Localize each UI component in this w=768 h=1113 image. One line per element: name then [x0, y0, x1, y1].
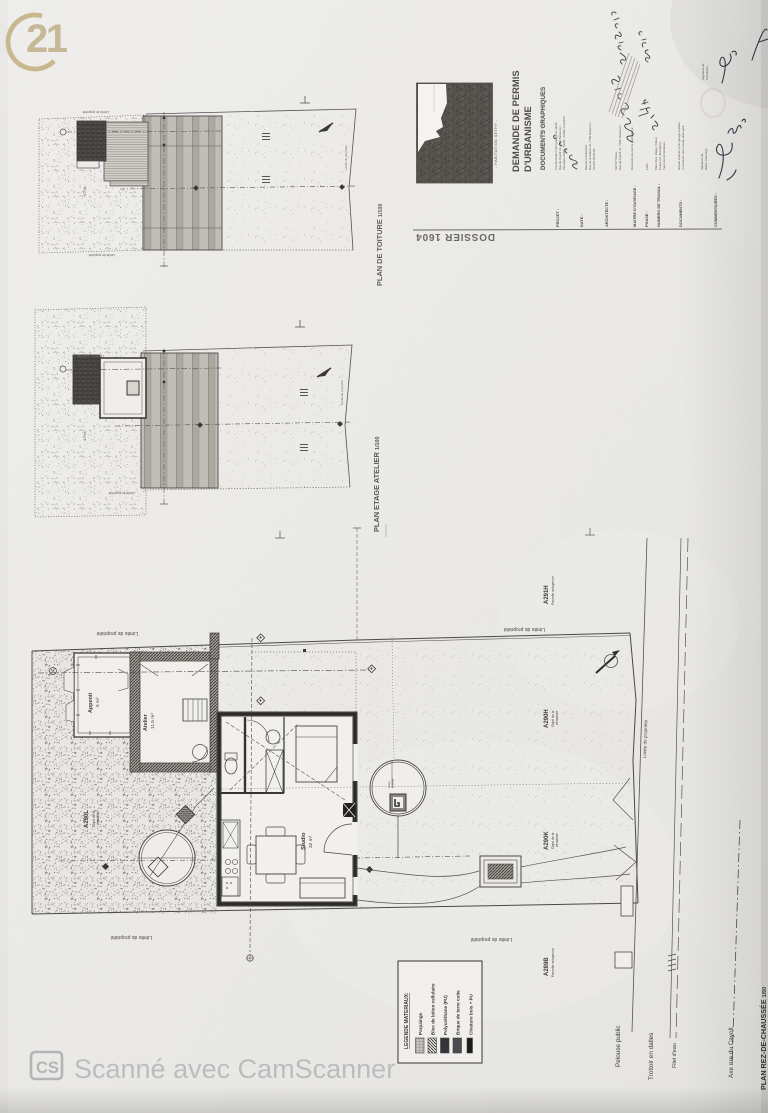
svg-text:A289B: A289B — [544, 957, 550, 976]
svg-text:Limite de propriété: Limite de propriété — [503, 626, 545, 632]
svg-text:Studio: Studio — [301, 832, 307, 850]
svg-text:Brique de terre cuite: Brique de terre cuite — [456, 990, 461, 1035]
svg-text:Parcelle mitoyenne: Parcelle mitoyenne — [551, 576, 555, 605]
svg-text:NUMERO DE TRAVAIL :: NUMERO DE TRAVAIL : — [656, 184, 661, 227]
svg-text:Rue du Cayolt 12, 7700, Mouscr: Rue du Cayolt 12, 7700, Mouscron — [618, 125, 622, 170]
svg-text:D'URBANISME: D'URBANISME — [522, 106, 533, 172]
svg-text:- HABITATION SETHY -: - HABITATION SETHY - — [494, 119, 498, 168]
svg-text:demande: demande — [555, 711, 559, 725]
svg-text:demande: demande — [96, 811, 100, 825]
svg-text:4.70m: 4.70m — [83, 186, 87, 196]
svg-text:A290H: A290H — [544, 709, 550, 728]
svg-text:DOCUMENTS GRAPHIQUES: DOCUMENTS GRAPHIQUES — [540, 87, 547, 170]
svg-text:11.5 m²: 11.5 m² — [150, 713, 156, 729]
svg-text:Vues axonometriques: Vues axonometriques — [662, 142, 666, 170]
svg-text:Trottoir en dalles: Trottoir en dalles — [648, 1033, 655, 1080]
svg-text:Bloc de béton cellulaire: Bloc de béton cellulaire — [431, 983, 436, 1035]
svg-text:4.70m: 4.70m — [83, 431, 87, 441]
svg-text:CS: CS — [36, 1059, 59, 1077]
svg-text:DOCUMENTS :: DOCUMENTS : — [678, 200, 683, 227]
svg-text:Tel 056 00 00 00: Tel 056 00 00 00 — [592, 148, 596, 170]
svg-text:Axe rue du Cayolt: Axe rue du Cayolt — [728, 1027, 735, 1078]
svg-text:PLAN ETAGE ATELIER 1/100: PLAN ETAGE ATELIER 1/100 — [372, 437, 381, 532]
svg-text:Atelier: Atelier — [143, 713, 149, 731]
svg-text:Limite de propriété: Limite de propriété — [96, 630, 138, 636]
svg-text:demande: demande — [555, 833, 559, 847]
svg-text:Maitre d'ouvrage: Maitre d'ouvrage — [704, 148, 708, 170]
svg-text:Scanné avec CamScanner: Scanné avec CamScanner — [74, 1054, 395, 1084]
svg-text:Limite de propriété: Limite de propriété — [108, 491, 135, 495]
svg-text:ARCHITECTE :: ARCHITECTE : — [604, 200, 609, 227]
svg-text:Limite de propriété: Limite de propriété — [344, 145, 348, 170]
svg-text:COMMENTAIRES :: COMMENTAIRES : — [713, 193, 718, 227]
svg-text:PHASE :: PHASE : — [644, 211, 649, 227]
svg-text:Limite de propriété: Limite de propriété — [470, 936, 512, 942]
svg-text:Cloature bois + PU: Cloature bois + PU — [469, 993, 474, 1035]
svg-text:A291H: A291H — [544, 585, 550, 604]
svg-text:21: 21 — [26, 17, 68, 61]
svg-text:Limite de propriété: Limite de propriété — [77, 354, 104, 358]
svg-text:LEGENDE MATERIAUX:: LEGENDE MATERIAUX: — [404, 992, 410, 1049]
svg-text:borne: borne — [387, 781, 391, 788]
svg-text:MAITRE D'OUVRAGE :: MAITRE D'OUVRAGE : — [632, 185, 637, 227]
svg-text:DATE :: DATE : — [579, 214, 584, 227]
svg-text:32 m²: 32 m² — [308, 835, 314, 848]
svg-text:Pelouse public: Pelouse public — [615, 1025, 622, 1067]
svg-text:l'architecte: l'architecte — [705, 66, 709, 80]
svg-text:Appenti: Appenti — [88, 692, 94, 713]
svg-text:PROJET :: PROJET : — [555, 209, 560, 227]
svg-text:Filet d'eau: Filet d'eau — [672, 1043, 678, 1068]
svg-text:Polyuréthane (PU): Polyuréthane (PU) — [443, 995, 448, 1035]
svg-text:6 m²: 6 m² — [95, 697, 101, 707]
svg-text:PLAN REZ-DE-CHAUSSÉE 1/50: PLAN REZ-DE-CHAUSSÉE 1/50 — [759, 987, 768, 1090]
svg-text:DEMANDE DE PERMIS: DEMANDE DE PERMIS — [510, 70, 521, 172]
svg-text:Parpaings: Parpaings — [418, 1012, 423, 1035]
svg-text:A290L: A290L — [84, 810, 90, 828]
svg-text:A290K: A290K — [544, 831, 550, 850]
svg-text:Limite de propriété: Limite de propriété — [88, 253, 115, 257]
svg-text:Parcelle mitoyenne: Parcelle mitoyenne — [551, 948, 555, 977]
svg-text:Limite de propriété: Limite de propriété — [82, 110, 109, 114]
svg-text:1604: 1604 — [645, 163, 649, 170]
svg-text:a conserver pour niveau plain-: a conserver pour niveau plain-pied — [681, 125, 685, 170]
svg-text:Limite de propriété: Limite de propriété — [340, 380, 344, 405]
svg-text:Parcelles A290K, A290L, A290H: Parcelles A290K, A290L, A290H et A291H — [562, 116, 566, 170]
svg-text:DOSSIER 1604: DOSSIER 1604 — [415, 231, 495, 242]
svg-text:Limite de propriété: Limite de propriété — [110, 934, 152, 940]
